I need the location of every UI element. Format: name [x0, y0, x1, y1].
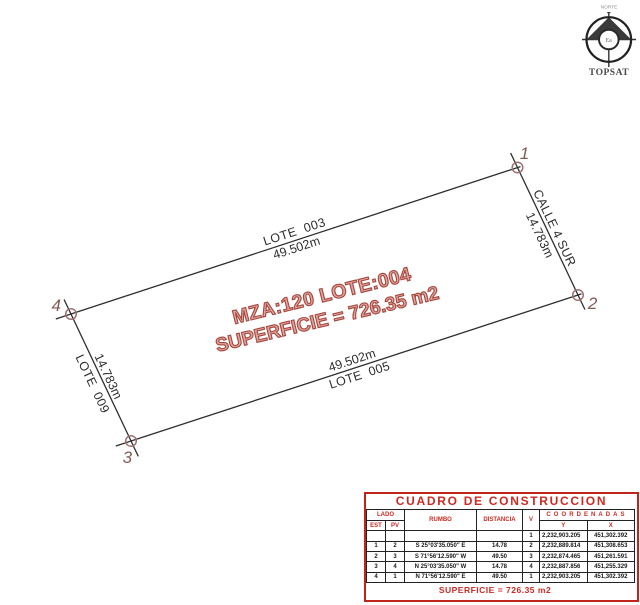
- svg-text:NORTE: NORTE: [601, 5, 618, 11]
- svg-text:Ea: Ea: [606, 38, 613, 44]
- svg-text:TOPSAT: TOPSAT: [589, 68, 629, 78]
- svg-text:3: 3: [123, 448, 133, 467]
- svg-text:4: 4: [51, 296, 60, 315]
- svg-text:1: 1: [520, 144, 529, 163]
- svg-text:2: 2: [587, 294, 598, 313]
